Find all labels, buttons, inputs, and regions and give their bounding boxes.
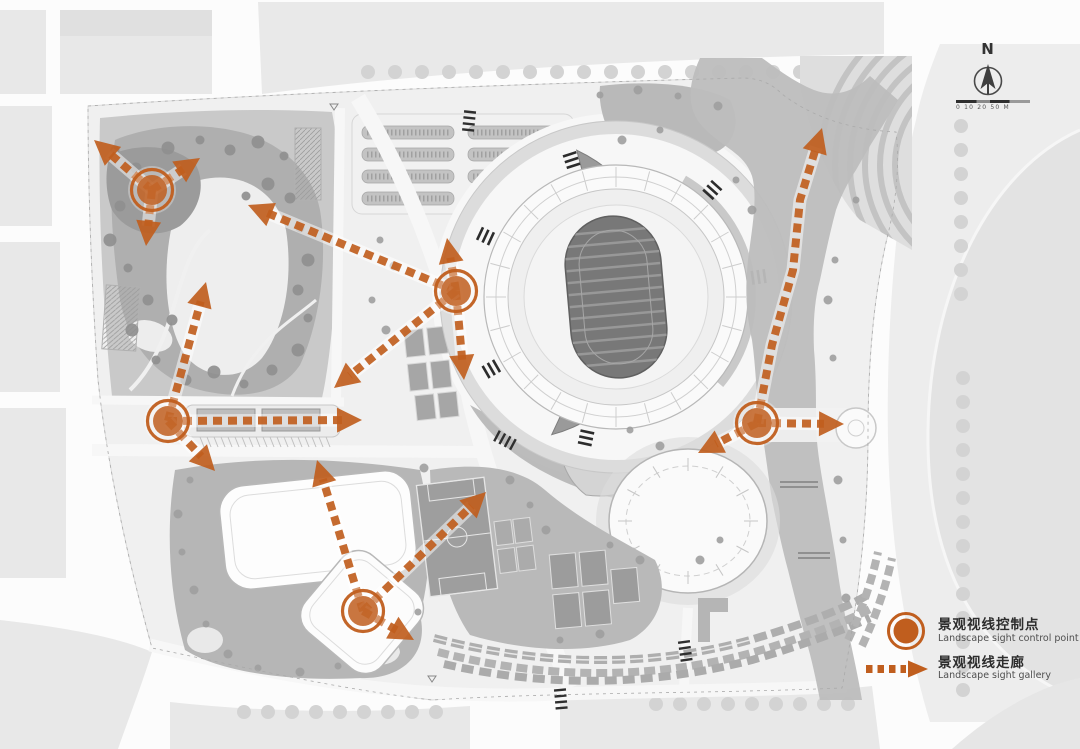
legend-label-en: Landscape sight gallery <box>938 671 1051 682</box>
soccer-field <box>416 477 497 596</box>
legend-item-control-point: 景观视线控制点 Landscape sight control point <box>864 610 1079 652</box>
legend-item-sight-corridor: 景观视线走廊 Landscape sight gallery <box>864 655 1079 682</box>
park-parking-lot <box>295 128 321 200</box>
legend-label-zh: 景观视线走廊 <box>938 655 1051 671</box>
sight-corridor-icon <box>864 659 928 679</box>
masterplan-figure: N 0 10 20 50 M 景观视线控制点 Landscape sight c… <box>0 0 1080 749</box>
scale-bar-text: 0 10 20 50 M <box>956 104 1030 111</box>
north-arrow-icon <box>968 59 1008 99</box>
west-parking-lot <box>102 285 140 351</box>
scale-bar: 0 10 20 50 M <box>956 100 1030 111</box>
gymnasium-zone <box>170 460 433 683</box>
riverside-circle-plaza <box>836 408 876 448</box>
legend-label-en: Landscape sight control point <box>938 634 1079 645</box>
compass: N <box>952 42 1024 99</box>
legend: 景观视线控制点 Landscape sight control point 景观… <box>864 610 1079 685</box>
legend-label-zh: 景观视线控制点 <box>938 617 1079 633</box>
compass-n-label: N <box>952 42 1024 57</box>
control-point-icon <box>864 610 928 652</box>
scale-bar-rule <box>956 100 1030 103</box>
